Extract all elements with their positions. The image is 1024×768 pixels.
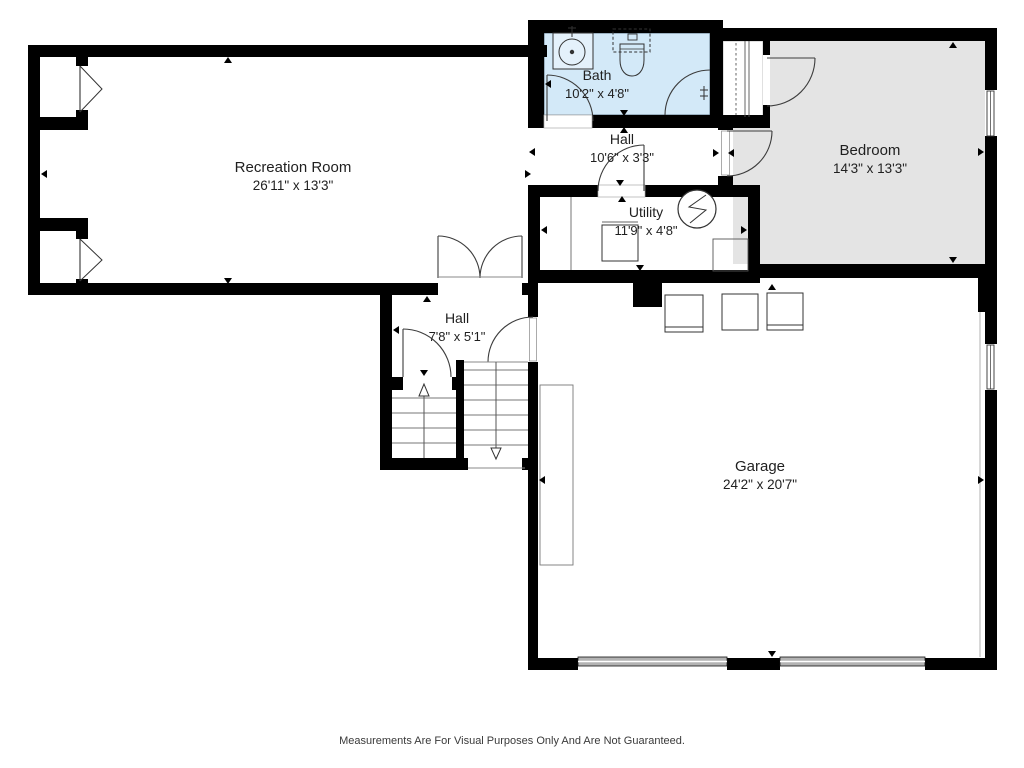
disclaimer-text: Measurements Are For Visual Purposes Onl… [339,735,685,747]
bedroom-window-icon [985,85,997,141]
french-doors-icon [438,236,522,278]
garage-window-icon [985,339,997,395]
garage-door-icon-left [578,657,727,666]
storage-unit-icon [767,293,803,330]
chevron-icon [80,66,102,112]
storage-unit-icon [722,294,758,330]
chevron-icon [80,239,102,281]
down-arrow-icon [491,448,501,459]
garage-pilaster [633,283,662,307]
window-well-icon-top [80,66,102,112]
storage-unit-icon [665,295,703,332]
stairs-down-icon [464,362,528,468]
floorplan-canvas: Recreation Room 26'11" x 13'3" Bath 10'2… [0,0,1024,768]
closet-area [723,41,763,117]
washer-icon [602,222,638,261]
bedroom-fill [733,41,985,264]
stairs-up-icon [392,384,456,458]
utility-corner-unit-icon [571,197,748,271]
garage-entry-door-icon [488,317,533,362]
workbench-icon [540,385,573,565]
water-heater-icon [678,190,716,228]
window-well-icon-bottom [80,239,102,281]
garage-entry-door-leaf [530,318,537,361]
garage-door-icon-right [780,657,925,666]
stair-door-icon [403,329,451,377]
floorplan-drawing [0,0,1024,768]
